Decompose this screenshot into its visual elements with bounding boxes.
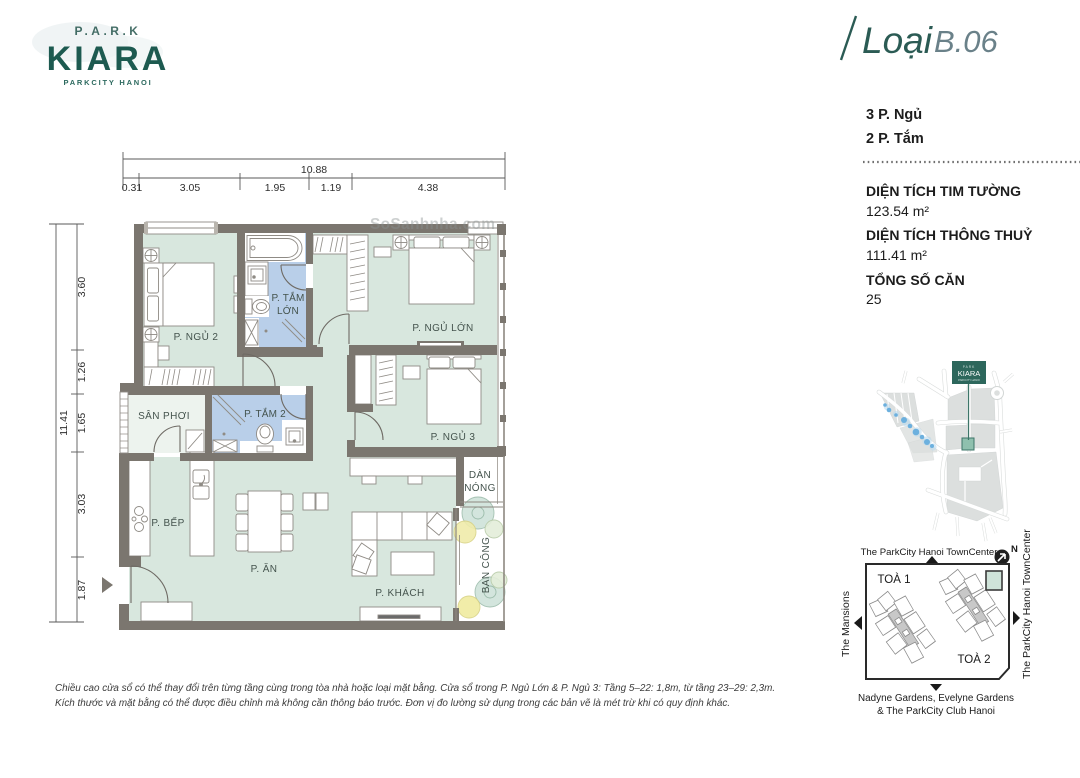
svg-text:TOÀ 2: TOÀ 2	[957, 653, 990, 666]
svg-text:DÀN: DÀN	[469, 468, 491, 481]
svg-text:TOÀ 1: TOÀ 1	[877, 573, 910, 586]
svg-text:3.05: 3.05	[180, 182, 201, 194]
svg-text:The ParkCity Hanoi TownCenter: The ParkCity Hanoi TownCenter	[1021, 529, 1033, 679]
svg-text:NÓNG: NÓNG	[464, 481, 496, 494]
svg-text:P.A.R.K: P.A.R.K	[75, 24, 142, 38]
svg-text:3.60: 3.60	[76, 277, 88, 298]
svg-text:P. NGỦ LỚN: P. NGỦ LỚN	[412, 321, 473, 334]
svg-text:3.03: 3.03	[76, 494, 88, 515]
svg-text:The Mansions: The Mansions	[840, 591, 852, 657]
svg-text:PARKCITY HANOI: PARKCITY HANOI	[958, 378, 980, 382]
svg-text:123.54 m²: 123.54 m²	[866, 203, 929, 219]
svg-text:P. TẮM 2: P. TẮM 2	[244, 407, 286, 420]
svg-text:2 P. Tắm: 2 P. Tắm	[866, 129, 924, 147]
svg-text:LỚN: LỚN	[277, 304, 299, 317]
svg-text:P. NGỦ 2: P. NGỦ 2	[174, 330, 219, 343]
svg-text:P. BẾP: P. BẾP	[151, 516, 184, 529]
svg-text:1.26: 1.26	[76, 362, 88, 383]
svg-text:Chiều cao cửa sổ có thể thay đ: Chiều cao cửa sổ có thể thay đổi trên từ…	[55, 683, 775, 694]
svg-text:& The ParkCity Club Hanoi: & The ParkCity Club Hanoi	[877, 706, 995, 717]
svg-text:P. NGỦ 3: P. NGỦ 3	[431, 430, 476, 443]
svg-text:1.19: 1.19	[321, 182, 342, 194]
svg-text:BAN CÔNG: BAN CÔNG	[479, 537, 492, 594]
svg-text:Loại: Loại	[862, 20, 934, 61]
svg-text:10.88: 10.88	[301, 164, 327, 176]
svg-text:3 P. Ngủ: 3 P. Ngủ	[866, 107, 922, 123]
svg-text:The ParkCity Hanoi TownCenter: The ParkCity Hanoi TownCenter	[861, 547, 999, 558]
svg-text:0.31: 0.31	[122, 182, 143, 194]
svg-text:P. ĂN: P. ĂN	[251, 562, 278, 575]
svg-text:11.41: 11.41	[58, 410, 70, 436]
svg-text:DIỆN TÍCH THÔNG THUỶ: DIỆN TÍCH THÔNG THUỶ	[866, 226, 1033, 243]
svg-text:111.41 m²: 111.41 m²	[866, 247, 927, 263]
svg-text:P. KHÁCH: P. KHÁCH	[375, 586, 424, 599]
svg-text:1.95: 1.95	[265, 182, 286, 194]
svg-text:KIARA: KIARA	[47, 40, 170, 78]
svg-text:Nadyne Gardens, Evelyne Garden: Nadyne Gardens, Evelyne Gardens	[858, 693, 1014, 704]
svg-text:PARKCITY HANOI: PARKCITY HANOI	[63, 78, 152, 87]
svg-text:KIARA: KIARA	[958, 369, 981, 378]
svg-text:N: N	[1011, 544, 1018, 555]
svg-text:1.87: 1.87	[76, 580, 88, 601]
svg-text:Kích thước và mặt bằng có thể: Kích thước và mặt bằng có thể được điều …	[55, 698, 730, 709]
svg-text:1.65: 1.65	[76, 413, 88, 434]
svg-text:SoSanhnha.com: SoSanhnha.com	[370, 216, 495, 233]
svg-text:DIỆN TÍCH TIM TƯỜNG: DIỆN TÍCH TIM TƯỜNG	[866, 182, 1021, 199]
svg-text:B.06: B.06	[934, 24, 999, 59]
svg-text:P. TẮM: P. TẮM	[271, 291, 304, 304]
svg-text:TỔNG SỐ CĂN: TỔNG SỐ CĂN	[866, 271, 965, 288]
svg-text:4.38: 4.38	[418, 182, 439, 194]
svg-text:SÂN PHƠI: SÂN PHƠI	[138, 409, 190, 422]
svg-text:25: 25	[866, 291, 882, 307]
